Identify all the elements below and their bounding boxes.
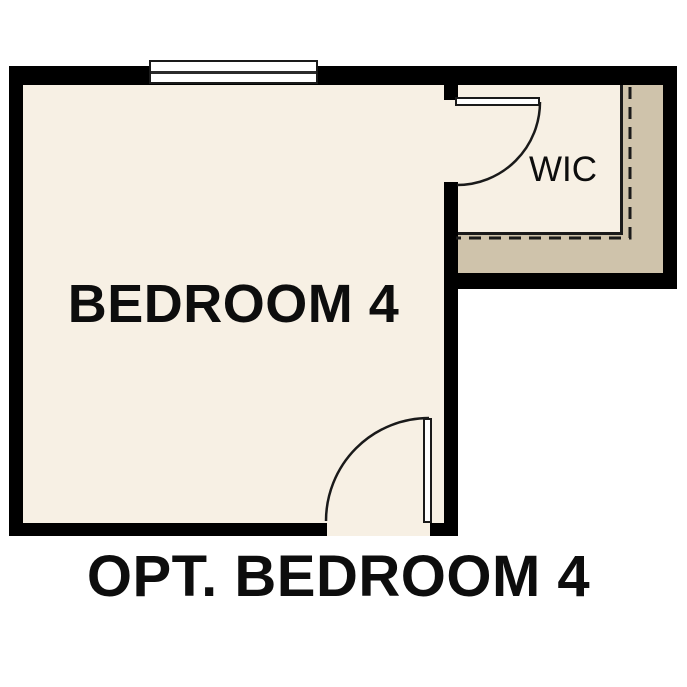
wic-label: WIC: [529, 152, 597, 187]
wall-right: [663, 66, 677, 289]
floor-plan: BEDROOM 4 WIC OPT. BEDROOM 4: [0, 0, 687, 687]
bedroom4-label: BEDROOM 4: [23, 85, 444, 523]
wic-door-leaf: [455, 97, 540, 106]
plan-caption: OPT. BEDROOM 4: [0, 548, 677, 606]
wall-top: [9, 66, 677, 85]
wall-left: [9, 66, 23, 536]
wall-bedroom-wic-divider: [444, 182, 458, 536]
window-divider-line: [151, 71, 316, 74]
wall-wic-bottom: [444, 273, 677, 289]
window-symbol: [149, 60, 318, 84]
wic-doorway-opening: [444, 100, 458, 182]
wall-bedroom-bottom: [9, 523, 327, 536]
bedroom-doorway-opening: [327, 523, 430, 536]
